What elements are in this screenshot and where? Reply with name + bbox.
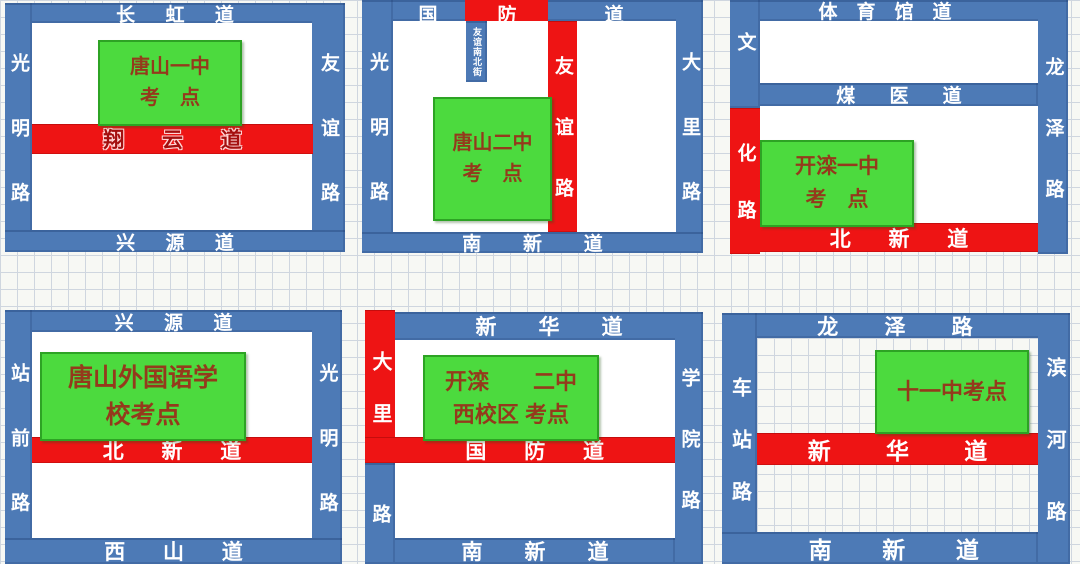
panel-kailuan-no2-west: 新华道 大里 路 学院路 国防道 南新道 开滦 二中 西校区 考点 [365, 310, 703, 564]
venue-label: 开滦一中 考 点 [795, 151, 879, 216]
venue-box-waiguoyu: 唐山外国语学 校考点 [40, 352, 246, 441]
road-label: 光明路 [318, 317, 337, 556]
road-wenhua-lu-blue: 文 [730, 0, 760, 108]
road-label: 车站路 [730, 345, 750, 533]
road-label: 大里 [370, 319, 390, 455]
road-xinhua-dao: 新华道 [395, 312, 703, 340]
venue-label: 唐山外国语学 校考点 [68, 360, 218, 433]
road-label: 文 [736, 32, 755, 77]
road-chezhan-lu: 车站路 [722, 313, 757, 564]
road-nanxin-dao: 南新道 [362, 232, 703, 253]
road-xingyuan-dao: 兴源道 [5, 310, 342, 332]
road-label: 光明路 [368, 7, 387, 246]
road-meiyi-dao: 煤医道 [760, 83, 1038, 106]
road-dali-lu-blue: 路 [365, 463, 395, 564]
road-label: 龙泽路 [771, 313, 1019, 338]
road-beixin-dao: 北新道 [760, 223, 1038, 252]
road-label: 光明路 [9, 8, 28, 247]
road-label: 新华道 [434, 312, 665, 340]
venue-box-no11-middle: 十一中考点 [875, 350, 1029, 434]
road-binhe-lu: 滨河路 [1038, 313, 1070, 564]
road-xishan-dao: 西山道 [5, 538, 342, 564]
road-nanxin-dao: 南新道 [395, 538, 675, 564]
road-label: 南新道 [420, 232, 644, 253]
road-youyi-lu: 友谊路 [548, 21, 577, 232]
venue-label: 唐山一中 考 点 [130, 52, 210, 114]
panel-waiguoyu: 兴源道 站前路 光明路 北新道 西山道 唐山外国语学 校考点 [5, 310, 342, 564]
street-youyi-nanbei-jie: 友谊南北街 [466, 21, 487, 82]
venue-label: 唐山二中 考 点 [453, 128, 533, 190]
venue-box-tangshan-no1: 唐山一中 考 点 [98, 40, 242, 126]
road-guangming-lu: 光明路 [362, 0, 393, 253]
road-label: 友谊路 [553, 21, 572, 232]
panel-kailuan-no1: 体育馆道 文 化路 龙泽路 煤医道 北新道 开滦一中 考 点 [730, 0, 1068, 254]
panel-tangshan-no1: 长虹道 光明路 友谊路 兴源道 翔云道 唐山一中 考 点 [5, 3, 345, 252]
road-label: 化路 [736, 108, 755, 254]
road-label: 兴源道 [84, 310, 263, 332]
venue-box-kailuan-no1: 开滦一中 考 点 [760, 140, 914, 227]
road-wenhua-lu-red: 化路 [730, 108, 760, 254]
road-guangming-lu: 光明路 [312, 310, 342, 564]
road-label: 新华道 [757, 433, 1038, 465]
road-label-char: 防 [497, 0, 516, 21]
road-label: 西山道 [66, 538, 280, 564]
road-nanxin-dao: 南新道 [722, 532, 1038, 564]
street-label: 友谊南北街 [472, 27, 481, 77]
venue-label: 十一中考点 [897, 375, 1007, 409]
road-zhanqian-lu: 站前路 [5, 310, 32, 564]
road-label: 体育馆道 [799, 0, 970, 21]
road-label: 长虹道 [86, 3, 265, 23]
road-label: 友谊路 [319, 8, 338, 247]
road-guofang-dao: 国 防 道 [362, 0, 703, 21]
road-label: 兴源道 [86, 230, 265, 252]
road-label: 南新道 [731, 532, 1030, 564]
road-youyi-lu: 友谊路 [312, 3, 345, 252]
road-longze-lu: 龙泽路 [1038, 0, 1068, 254]
road-changhong-dao: 长虹道 [5, 3, 345, 23]
road-xueyuan-lu: 学院路 [675, 312, 703, 564]
venue-box-kailuan-no2-west: 开滦 二中 西校区 考点 [423, 355, 599, 441]
road-label: 北新道 [792, 223, 1006, 252]
road-label-char: 国 [418, 0, 437, 21]
road-label: 站前路 [9, 317, 28, 556]
road-label: 煤医道 [802, 83, 996, 106]
venue-box-tangshan-no2: 唐山二中 考 点 [433, 97, 552, 221]
road-label: 学院路 [680, 326, 699, 550]
road-xinhua-dao: 新华道 [757, 433, 1038, 465]
road-label: 大里路 [680, 7, 699, 246]
road-xingyuan-dao: 兴源道 [5, 230, 345, 252]
venue-label: 开滦 二中 西校区 考点 [445, 365, 577, 431]
road-longze-lu: 龙泽路 [722, 313, 1068, 338]
road-label: 翔云道 [65, 124, 279, 154]
road-tiyuguan-dao: 体育馆道 [730, 0, 1040, 21]
road-label: 龙泽路 [1044, 15, 1063, 239]
panel-no11-middle: 龙泽路 车站路 滨河路 新华道 南新道 十一中考点 [722, 313, 1070, 564]
road-label-char: 道 [604, 0, 623, 21]
road-xiangyun-dao: 翔云道 [32, 124, 313, 154]
road-label: 滨河路 [1044, 313, 1064, 564]
road-dali-lu: 大里路 [676, 0, 703, 253]
road-label: 南新道 [420, 538, 651, 564]
road-label: 路 [371, 504, 390, 523]
panel-tangshan-no2: 国 防 道 光明路 大里路 友谊路 友谊南北街 南新道 唐山二中 考 点 [362, 0, 703, 253]
exam-venue-maps: 长虹道 光明路 友谊路 兴源道 翔云道 唐山一中 考 点 国 防 道 光明路 [0, 0, 1080, 564]
road-guangming-lu: 光明路 [5, 3, 32, 252]
